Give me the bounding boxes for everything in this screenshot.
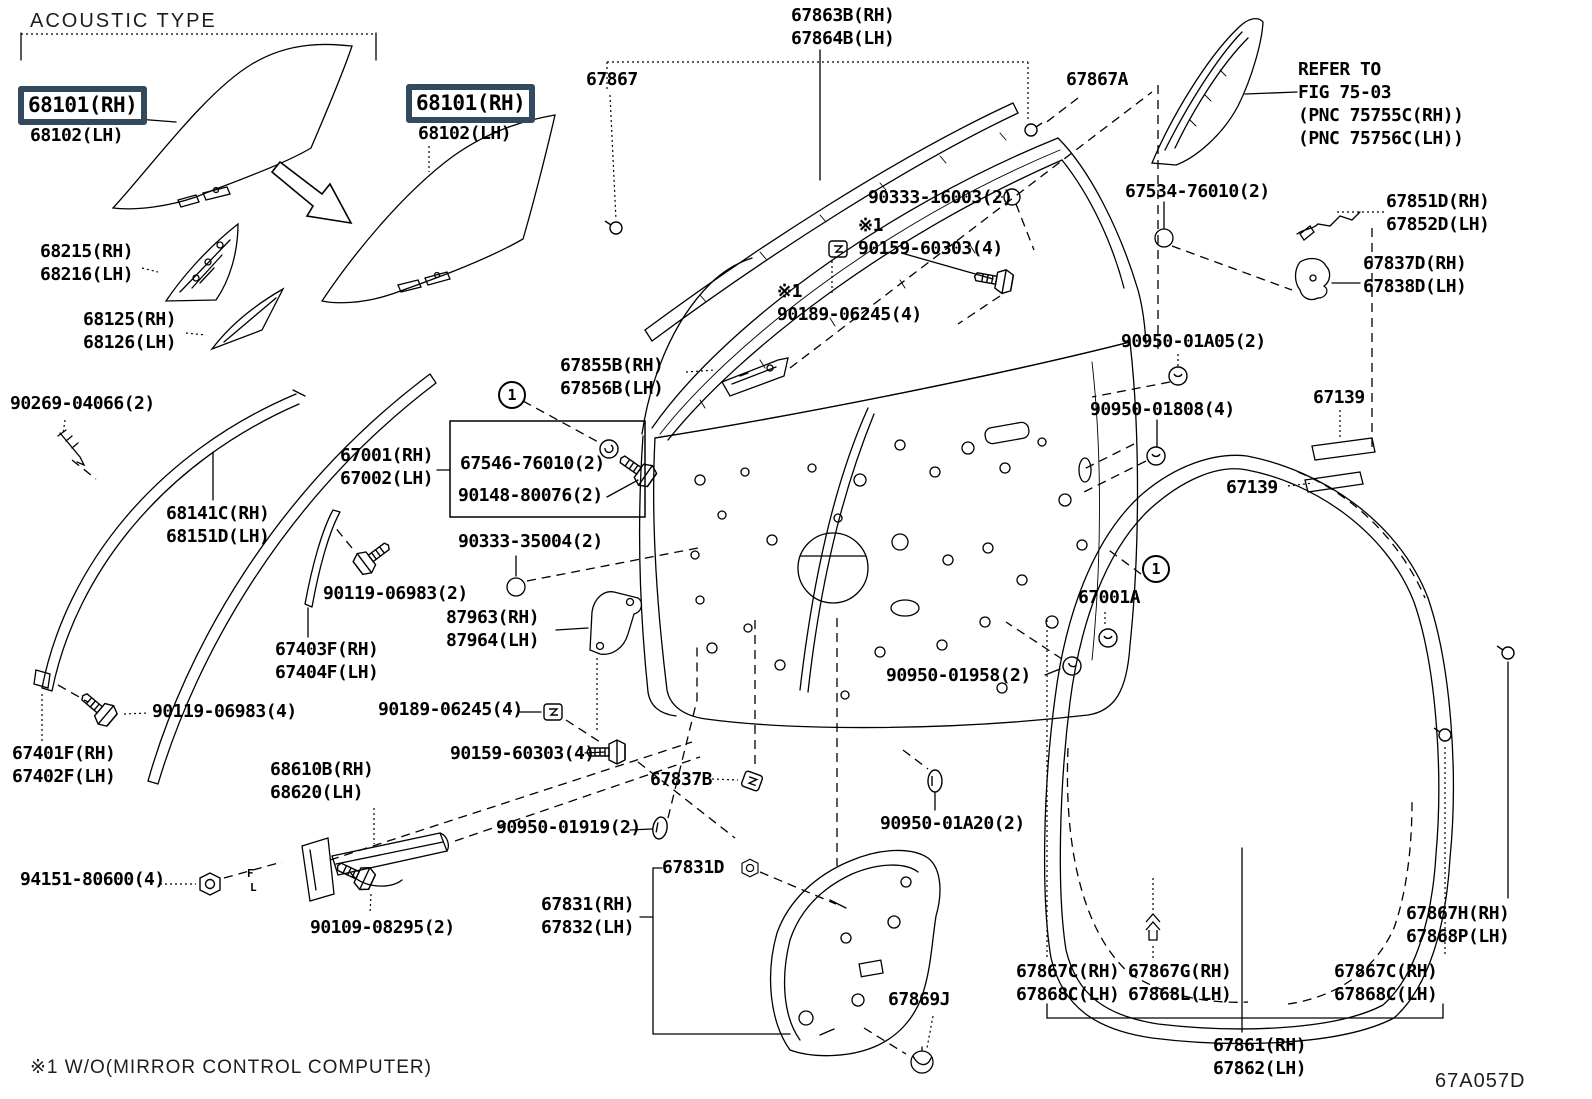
door-glass-rh [113,44,352,208]
label-bracket [1047,1004,1443,1018]
door-trim-art [771,850,940,1055]
grommet-icon [911,1047,933,1073]
screw-icon [351,536,396,578]
fir-tree-clip-icon [1146,914,1160,940]
screw-icon [614,448,659,489]
ring-clip-icon [600,440,618,458]
tape-art [1305,438,1375,492]
grommet-icon [1147,447,1165,465]
fastener-box [450,421,645,517]
mirror-bracket-art [166,224,238,301]
pin-clip-icon [1497,646,1514,659]
run-channel-front-art [305,510,340,637]
acoustic-bracket [21,33,376,60]
pin-clip-icon [605,221,622,234]
screw-icon [972,265,1014,295]
screw-icon [75,686,120,729]
upper-molding-art [645,50,1018,341]
clip-icon [544,704,562,720]
door-check-art [302,833,448,901]
plug-icon [651,816,669,840]
run-channel-art [148,374,436,784]
nut-icon [742,859,758,877]
door-stiffener-art [556,592,641,655]
grommet-icon [1099,629,1117,647]
clip-icon [829,241,847,257]
diagram-art [0,0,1592,1099]
nut-icon [200,873,220,895]
cushion-art [1296,259,1361,300]
belt-molding-clip-art [1297,212,1360,240]
screw-icon [58,430,84,465]
solid-art [21,19,1508,1073]
door-outer-panel-art [640,258,752,716]
arrow-icon [272,162,351,223]
grommet-icon [1169,367,1187,385]
fasteners [75,123,1514,940]
door-glass-lh [322,115,555,303]
weatherstrip-art [1045,455,1454,1043]
grommet-icon [1061,655,1083,677]
dashed-leaders [58,85,1425,1054]
frame-reinforcement-art [722,358,788,396]
washer-icon [1004,189,1020,205]
door-inner-panel-art [652,138,1146,728]
pillar-garnish-art [1152,19,1297,165]
plug-icon [928,770,942,792]
quarter-glass-art [212,289,283,349]
clip-icon [741,770,763,791]
front-channel-art [34,390,305,691]
dotted-leaders [21,34,1445,1048]
pin-clip-icon [1025,123,1042,136]
